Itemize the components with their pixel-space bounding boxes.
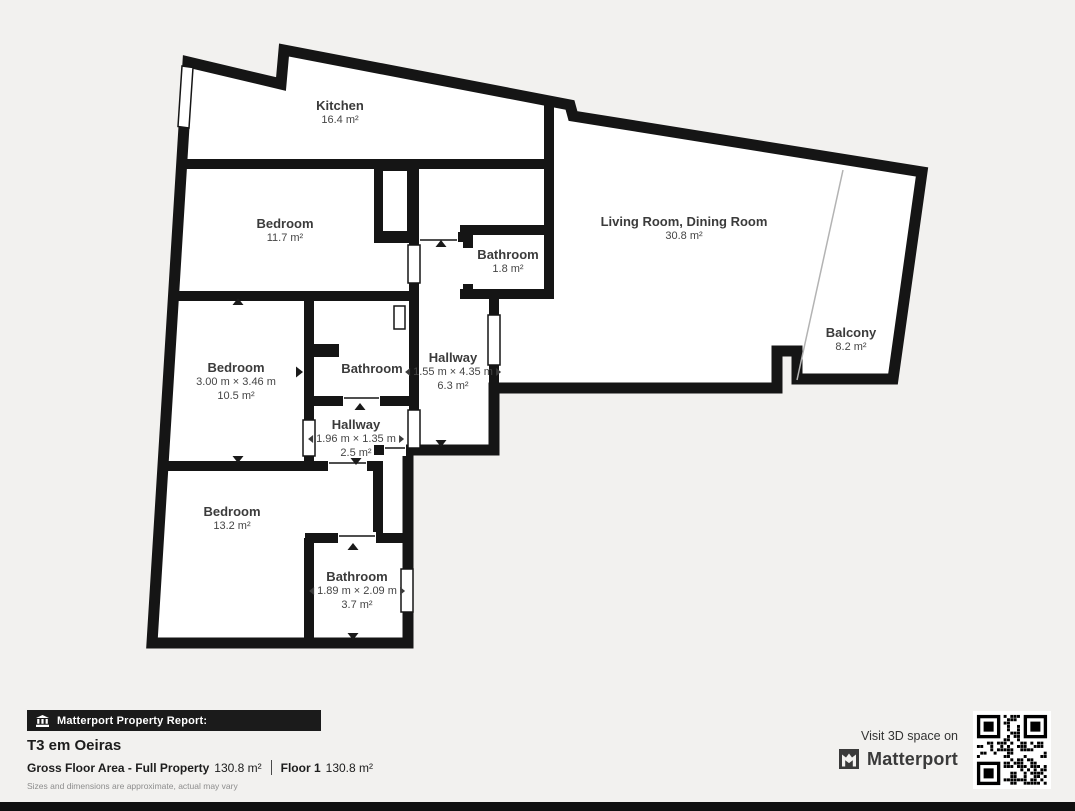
- property-title: T3 em Oeiras: [27, 737, 121, 754]
- divider: [271, 760, 272, 775]
- matterport-brand: Matterport: [837, 747, 958, 771]
- bottom-bar: [0, 802, 1075, 811]
- gfa-value: 130.8 m²: [214, 761, 261, 775]
- report-badge: Matterport Property Report:: [27, 710, 321, 731]
- matterport-logo-icon: [837, 747, 861, 771]
- report-badge-label: Matterport Property Report:: [57, 715, 207, 727]
- duct-cavity: [383, 171, 407, 231]
- bathroom-stub-wall: [311, 344, 339, 357]
- door-slot: [488, 315, 500, 365]
- property-report-page: Kitchen 16.4 m² Bedroom 11.7 m² Living R…: [0, 0, 1075, 811]
- visit-3d-label: Visit 3D space on: [861, 729, 958, 743]
- building-icon: [36, 715, 49, 727]
- window: [394, 306, 405, 329]
- floor-value: 130.8 m²: [326, 761, 373, 775]
- door-slot: [408, 245, 420, 283]
- door-slot: [303, 420, 315, 456]
- floor-label: Floor 1: [281, 761, 321, 775]
- floor-plan: [0, 0, 1075, 811]
- disclaimer-text: Sizes and dimensions are approximate, ac…: [27, 781, 238, 791]
- gfa-label: Gross Floor Area - Full Property: [27, 761, 209, 775]
- window: [401, 569, 413, 612]
- door-slot: [408, 410, 420, 448]
- matterport-wordmark: Matterport: [867, 749, 958, 770]
- qr-code: [973, 711, 1051, 789]
- floor-area-summary: Gross Floor Area - Full Property 130.8 m…: [27, 760, 373, 775]
- exterior-walls: [152, 50, 922, 643]
